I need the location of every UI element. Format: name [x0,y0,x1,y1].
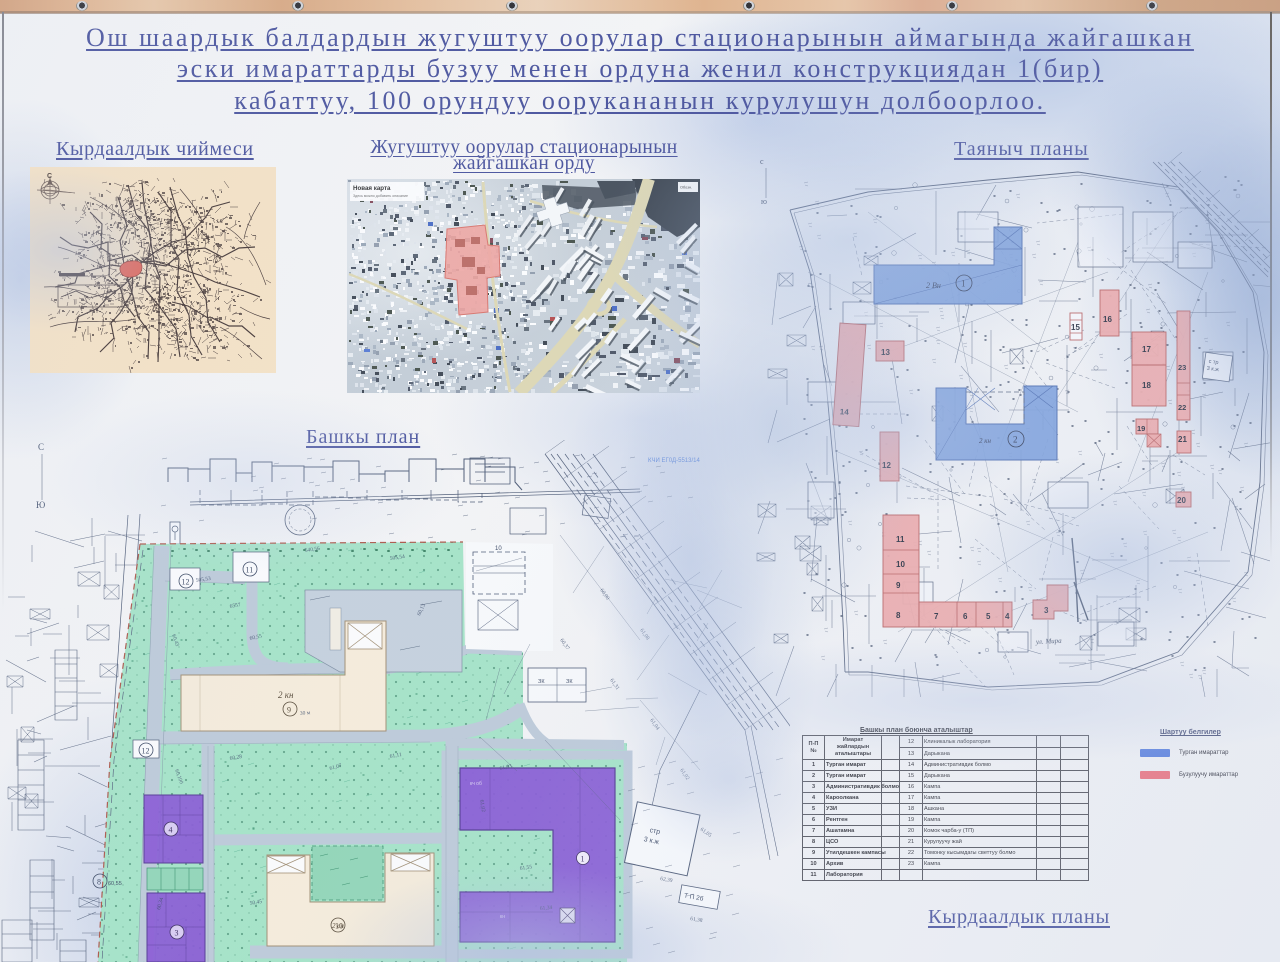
svg-text:3: 3 [175,929,179,938]
svg-text:19: 19 [1137,424,1145,433]
svg-text:61,08: 61,08 [638,628,650,642]
svg-text:3: 3 [1044,606,1049,615]
svg-text:ЗК: ЗК [566,679,573,685]
svg-text:4: 4 [169,826,173,835]
svg-text:62,39: 62,39 [660,876,673,884]
svg-text:16: 16 [1103,315,1112,324]
svg-text:ул. Мира: ул. Мира [1035,637,1063,646]
svg-text:9: 9 [896,581,901,590]
svg-text:10: 10 [495,546,502,552]
svg-text:1: 1 [961,279,966,289]
svg-text:30 м: 30 м [300,710,311,717]
svg-text:60,00: 60,00 [598,588,610,602]
svg-text:61,05: 61,05 [699,827,713,839]
svg-text:60,37: 60,37 [558,638,570,652]
svg-text:6: 6 [963,612,968,621]
svg-text:22: 22 [1178,403,1186,412]
svg-text:ЗК: ЗК [538,679,545,685]
svg-text:с: с [760,157,764,166]
svg-text:8: 8 [896,611,901,620]
svg-text:17: 17 [1142,345,1151,354]
svg-text:Новая карта: Новая карта [353,185,391,192]
svg-text:1: 1 [581,855,585,864]
svg-text:4: 4 [1005,612,1010,621]
svg-text:11: 11 [246,566,254,575]
svg-text:21: 21 [1178,435,1187,444]
svg-text:10: 10 [896,560,905,569]
svg-text:61,04: 61,04 [648,718,660,732]
svg-text:14: 14 [839,407,849,417]
svg-text:кн: кн [500,914,505,920]
svg-text:7: 7 [934,612,939,621]
svg-text:13: 13 [881,348,890,357]
svg-text:61,02: 61,02 [678,768,690,782]
svg-text:12: 12 [882,461,891,470]
svg-text:23: 23 [1178,363,1186,372]
svg-text:2 Вн: 2 Вн [926,281,941,290]
svg-text:61,31: 61,31 [608,678,620,692]
svg-text:5: 5 [986,612,991,621]
svg-text:кч об: кч об [470,781,482,787]
svg-text:10: 10 [335,922,343,931]
svg-text:2 кн: 2 кн [278,690,294,700]
svg-text:8: 8 [97,878,101,887]
svg-text:С: С [47,173,52,180]
svg-text:2: 2 [1013,435,1018,445]
svg-text:60,55: 60,55 [108,881,122,887]
svg-text:9: 9 [287,706,291,715]
svg-text:2 кн: 2 кн [979,437,992,445]
svg-text:Здесь можно добавить описание: Здесь можно добавить описание [353,194,408,198]
svg-text:18: 18 [1142,381,1151,390]
svg-text:11: 11 [896,535,905,544]
svg-text:12: 12 [182,578,190,587]
svg-text:12: 12 [142,747,150,756]
svg-text:С: С [38,442,44,452]
svg-text:ю: ю [761,197,767,206]
svg-text:Обозн.: Обозн. [680,186,692,190]
svg-text:20: 20 [1177,496,1186,505]
svg-text:61,38: 61,38 [690,916,703,924]
svg-text:61,34: 61,34 [540,905,553,912]
svg-text:15: 15 [1071,323,1080,332]
svg-text:КЧИ ЕГ0Д-5513/14: КЧИ ЕГ0Д-5513/14 [648,458,700,464]
svg-text:Ю: Ю [36,500,45,510]
